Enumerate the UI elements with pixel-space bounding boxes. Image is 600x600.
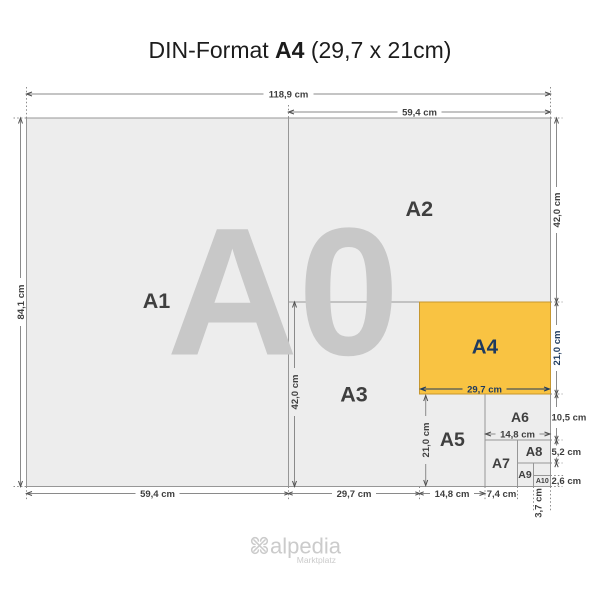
- svg-text:A7: A7: [492, 455, 510, 471]
- svg-text:A10: A10: [536, 478, 549, 485]
- svg-text:2,6 cm: 2,6 cm: [552, 476, 582, 487]
- svg-text:14,8 cm: 14,8 cm: [435, 489, 470, 500]
- svg-text:A1: A1: [143, 289, 171, 313]
- svg-text:A3: A3: [340, 383, 368, 407]
- svg-text:A4: A4: [472, 336, 499, 359]
- svg-text:7,4 cm: 7,4 cm: [487, 489, 517, 500]
- svg-text:59,4 cm: 59,4 cm: [140, 489, 175, 500]
- svg-text:21,0 cm: 21,0 cm: [421, 423, 432, 458]
- svg-text:14,8 cm: 14,8 cm: [500, 429, 535, 440]
- svg-text:A2: A2: [406, 197, 434, 221]
- svg-text:118,9 cm: 118,9 cm: [269, 89, 309, 100]
- svg-text:Marktplatz: Marktplatz: [297, 555, 336, 565]
- svg-text:A5: A5: [440, 429, 465, 451]
- svg-text:10,5 cm: 10,5 cm: [552, 412, 587, 423]
- svg-text:A8: A8: [526, 444, 543, 459]
- svg-text:29,7 cm: 29,7 cm: [467, 384, 502, 395]
- svg-text:59,4 cm: 59,4 cm: [402, 107, 437, 118]
- svg-text:5,2 cm: 5,2 cm: [552, 447, 582, 458]
- svg-text:21,0 cm: 21,0 cm: [552, 331, 563, 366]
- svg-text:29,7 cm: 29,7 cm: [337, 489, 372, 500]
- svg-text:DIN-Format A4 (29,7 x 21cm): DIN-Format A4 (29,7 x 21cm): [149, 37, 452, 63]
- svg-text:A6: A6: [511, 409, 529, 425]
- svg-text:84,1 cm: 84,1 cm: [16, 285, 27, 320]
- svg-text:A9: A9: [518, 469, 532, 481]
- svg-text:3,7 cm: 3,7 cm: [534, 488, 545, 518]
- svg-text:A0: A0: [167, 190, 400, 394]
- svg-text:42,0 cm: 42,0 cm: [290, 375, 301, 410]
- svg-text:42,0 cm: 42,0 cm: [552, 193, 563, 228]
